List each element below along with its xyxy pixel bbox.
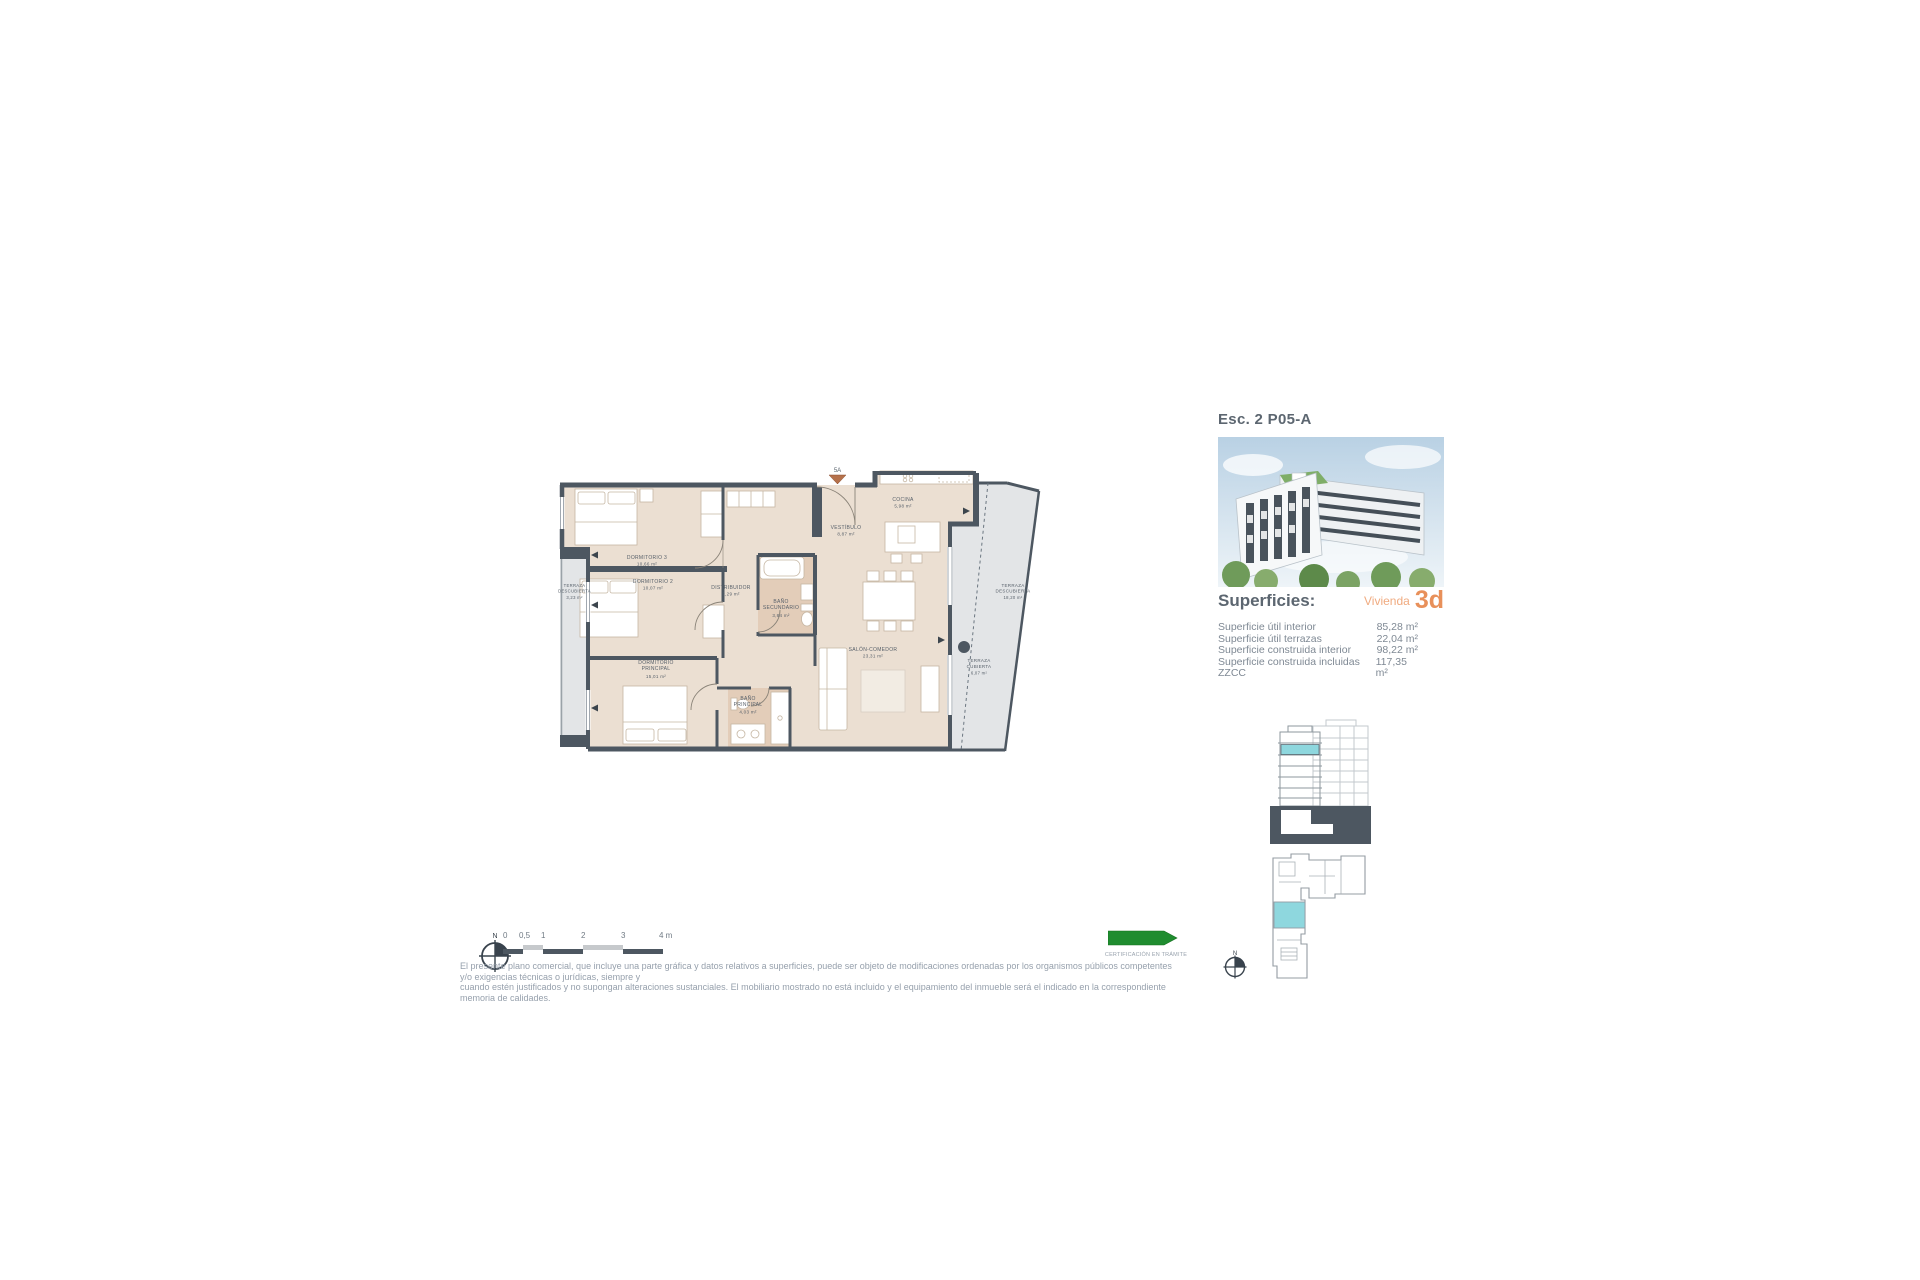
planter-icon [958,641,970,653]
legal-disclaimer: El presente plano comercial, que incluye… [460,961,1186,1003]
page: 5A DORMITORIO 3 10,66 m² DORMITORIO 2 10… [0,0,1920,1280]
scale-tick-label: 0 [503,931,507,940]
plan-title: Esc. 2 P05-A [1218,411,1312,428]
entrance-label: 5A [834,468,841,474]
svg-text:BAÑO: BAÑO [740,695,755,702]
superficies-header: Superficies: Vivienda 3d [1218,590,1444,611]
svg-text:DESCUBIERTA: DESCUBIERTA [996,589,1031,594]
scale-bar [503,942,673,956]
svg-text:3,23 m²: 3,23 m² [566,595,583,600]
floor-plan: 5A DORMITORIO 3 10,66 m² DORMITORIO 2 10… [555,452,1045,752]
svg-text:TERRAZA: TERRAZA [967,658,990,663]
row-label: Superficie construida incluidas ZZCC [1218,657,1376,680]
north-compass-icon: N [1222,948,1248,980]
superficies-table: Superficie útil interior 85,28 m² Superf… [1218,622,1418,680]
svg-text:N: N [492,933,497,940]
svg-text:DISTRIBUIDOR: DISTRIBUIDOR [711,585,751,591]
svg-text:CUBIERTA: CUBIERTA [967,664,992,669]
entrance-marker: 5A [829,468,846,484]
svg-text:COCINA: COCINA [892,497,914,503]
svg-text:DORMITORIO 3: DORMITORIO 3 [627,555,667,561]
svg-text:SECUNDARIO: SECUNDARIO [763,605,799,611]
room-label-cocina: COCINA 5,98 m² [892,497,914,509]
row-value: 85,28 m² [1377,622,1418,634]
disclaimer-line-2: cuando estén justificados y no supongan … [460,982,1186,1003]
svg-text:DESCUBIERTA: DESCUBIERTA [558,589,591,594]
vivienda-value: 3d [1415,590,1444,611]
row-value: 98,22 m² [1377,645,1418,657]
certification-caption: CERTIFICACIÓN EN TRÁMITE [1096,952,1196,958]
highlighted-floor [1281,745,1319,755]
svg-text:6,07 m²: 6,07 m² [971,671,988,676]
table-row: Superficie construida interior 98,22 m² [1218,645,1418,657]
superficies-heading: Superficies: [1218,591,1315,611]
svg-text:BAÑO: BAÑO [773,598,788,605]
svg-text:2,29 m²: 2,29 m² [722,592,740,597]
building-render-image [1218,437,1444,587]
key-plan-diagram [1243,848,1378,988]
svg-text:DORMITORIO 2: DORMITORIO 2 [633,579,673,585]
svg-text:TERRAZA: TERRAZA [564,583,586,588]
row-label: Superficie construida interior [1218,645,1351,657]
svg-text:15,01 m²: 15,01 m² [646,674,666,679]
vivienda-badge: Vivienda 3d [1364,590,1444,611]
svg-text:18,20 m²: 18,20 m² [1004,595,1023,600]
building-section-diagram [1268,718,1373,850]
scale-tick-label: 2 [581,931,585,940]
row-value: 117,35 m² [1376,657,1418,680]
vivienda-label: Vivienda [1364,594,1410,611]
svg-text:5,98 m²: 5,98 m² [894,504,912,509]
row-label: Superficie útil interior [1218,622,1316,634]
svg-text:4,03 m²: 4,03 m² [739,710,757,715]
table-row: Superficie construida incluidas ZZCC 117… [1218,657,1418,680]
highlighted-unit [1274,902,1305,928]
scale-tick-label: 1 [541,931,545,940]
svg-text:SALÓN-COMEDOR: SALÓN-COMEDOR [849,646,898,653]
svg-text:10,66 m²: 10,66 m² [637,562,657,567]
energy-certification-arrow-icon [1108,930,1178,946]
svg-text:TERRAZA: TERRAZA [1001,583,1024,588]
svg-text:VESTÍBULO: VESTÍBULO [831,524,862,531]
svg-text:PRINCIPAL: PRINCIPAL [642,666,671,672]
entrance-triangle-icon [829,475,846,484]
svg-text:23,31 m²: 23,31 m² [863,654,883,659]
svg-text:3,84 m²: 3,84 m² [772,613,790,618]
scale-tick-label: 3 [621,931,625,940]
disclaimer-line-1: El presente plano comercial, que incluye… [460,961,1186,982]
svg-text:PRINCIPAL: PRINCIPAL [734,702,763,708]
svg-text:10,07 m²: 10,07 m² [643,586,663,591]
table-row: Superficie útil interior 85,28 m² [1218,622,1418,634]
scale-tick-label: 4 m [659,931,672,940]
svg-text:8,87 m²: 8,87 m² [837,532,855,537]
scale-tick-label: 0,5 [519,931,530,940]
